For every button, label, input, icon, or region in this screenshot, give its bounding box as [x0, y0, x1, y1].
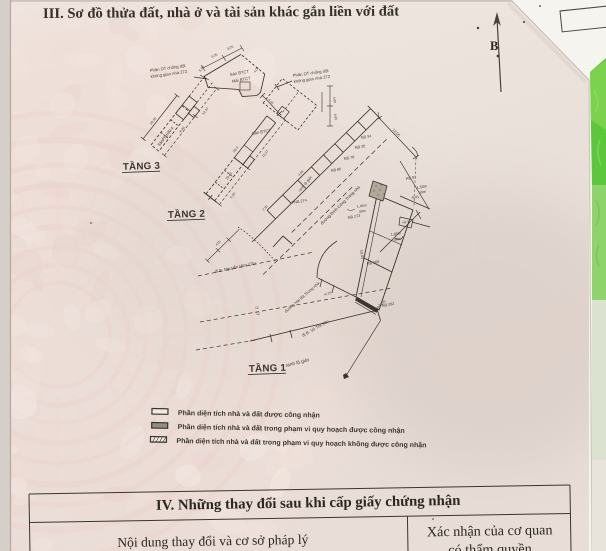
- svg-text:12: 12: [256, 312, 260, 316]
- svg-text:B: B: [490, 39, 498, 53]
- svg-text:có thẩm quyền: có thẩm quyền: [448, 541, 532, 551]
- svg-text:III. Sơ đồ thửa đất, nhà ở và: III. Sơ đồ thửa đất, nhà ở và tài sản kh…: [43, 4, 399, 22]
- svg-text:12: 12: [255, 306, 259, 310]
- svg-text:Nội dung thay đổi và cơ sở phá: Nội dung thay đổi và cơ sở pháp lý: [117, 532, 308, 550]
- svg-text:Xác nhận của cơ quan: Xác nhận của cơ quan: [427, 522, 553, 540]
